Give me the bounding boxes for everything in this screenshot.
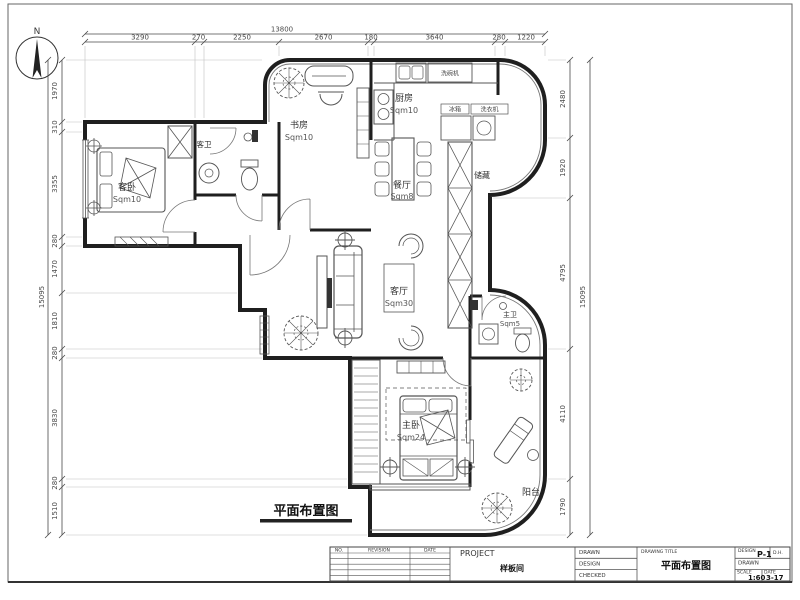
dim-left-seg: 3355 [51,175,59,193]
north-label: N [34,27,41,37]
shower-head-icon [500,303,507,310]
dim-left-seg: 280 [51,476,59,489]
sink [396,63,426,82]
dim-top-seg: 3290 [131,34,149,42]
room-label-dining: 餐厅 [393,179,411,191]
toilet [241,160,258,190]
dim-left-seg: 280 [51,346,59,359]
armchair [399,234,423,258]
room-area-kitchen: Sqm10 [390,106,418,115]
dimension-right: 15095 2480 1920 4795 4110 1790 [488,57,593,538]
fridge-label: 冰箱 [449,106,461,114]
side-table [528,450,539,461]
tv-cabinet [397,361,445,373]
washing-machine [473,116,495,140]
dim-top-seg: 270 [192,34,205,42]
dim-left-seg: 1470 [51,260,59,278]
rev-desc-header: REVISION [368,548,390,554]
north-arrow: N [16,27,58,79]
revision-table: NO. REVISION DATE [335,548,436,554]
closet [168,126,192,158]
drawn2-label: DRAWN [738,561,759,567]
design-label: DESIGN [579,562,600,568]
room-label-master-bath: 主卫 [503,310,517,319]
plan-title-underline [260,519,352,523]
balcony: 阳台 [493,416,540,498]
rev-date-header: DATE [424,548,436,554]
storage-area: 冰箱 洗衣机 储藏 [441,104,508,328]
shower-head-icon [244,130,258,142]
date-value: 3-17 [766,574,784,582]
room-label-master-bedroom: 主卧 [402,419,420,431]
plant-icon [284,316,318,350]
dim-right-seg: 1790 [559,498,567,516]
plant-icon [510,369,532,391]
plant-icon [274,68,304,98]
dim-left-seg: 280 [51,234,59,247]
armchair [399,326,423,350]
dim-top-total: 13800 [271,26,293,34]
dim-top-seg: 180 [364,34,377,42]
room-area-study: Sqm10 [285,133,313,142]
dim-left-seg: 1970 [51,82,59,100]
kitchen: 洗碗机 厨房 Sqm10 [374,63,498,140]
dim-top-seg: 280 [492,34,505,42]
basin [199,163,219,183]
dim-left-seg: 3830 [51,409,59,427]
dim-right-seg: 1920 [559,159,567,177]
room-label-balcony: 阳台 [522,486,540,498]
column-symbol [335,230,355,250]
basin [479,324,498,344]
plant-icon [482,493,512,523]
master-bedroom: 主卧 Sqm24 [352,360,475,484]
wardrobe [352,360,380,484]
room-area-master-bedroom: Sqm24 [397,433,425,442]
room-area-master-bath: Sqm5 [500,320,520,328]
drawing-sheet: N 13800 3290 270 2250 2670 180 3640 280 … [0,0,800,600]
room-area-living: Sqm30 [385,299,413,308]
lamp-symbol [455,457,475,477]
drawing-number: P-1 [757,550,772,559]
project-label: PROJECT [460,549,495,558]
dim-top-seg: 1220 [517,34,535,42]
dim-right-seg: 4795 [559,264,567,282]
sofa [334,246,362,338]
dim-top-seg: 2250 [233,34,251,42]
room-label-kitchen: 厨房 [395,92,413,104]
floorplan-canvas: N 13800 3290 270 2250 2670 180 3640 280 … [0,0,800,600]
drawing-title-label: DRAWING TITLE [641,549,677,555]
room-label-guest-bedroom: 客卧 [118,181,136,193]
room-area-guest-bedroom: Sqm10 [113,195,141,204]
dishwasher-label: 洗碗机 [441,70,459,78]
title-block: NO. REVISION DATE PROJECT 样板间 DRAWN DESI… [8,547,792,582]
interior-walls [82,60,544,490]
designer-initials: D.H. [773,550,783,556]
guest-bathroom: 客卫 [197,128,259,190]
rev-no-header: NO. [335,548,343,554]
drain [470,300,478,310]
scale-value: 1:60 [748,574,766,582]
dim-top-seg: 2670 [315,34,333,42]
fridge [441,116,471,140]
room-area-dining: Sqm8 [390,192,413,201]
compass-needle-icon [33,39,42,78]
plan-title-text: 平面布置图 [273,503,338,519]
dining: 餐厅 Sqm8 [375,138,431,201]
dim-right-total: 15095 [579,286,587,308]
dimension-left: 15095 1970 310 3355 280 1470 1810 280 38… [38,57,367,538]
dim-right-seg: 2480 [559,90,567,108]
dim-right-seg: 4110 [559,405,567,423]
dim-left-total: 15095 [38,286,46,308]
room-label-guest-bath: 客卫 [197,139,212,149]
tv-cabinet [317,256,332,328]
drawing-title: 平面布置图 [661,559,711,572]
dim-left-seg: 1810 [51,312,59,330]
room-label-storage: 储藏 [474,170,490,180]
bookshelf [357,88,369,158]
drawn-label: DRAWN [579,550,600,556]
design2-label: DESIGN [738,548,756,554]
dim-left-seg: 310 [51,120,59,133]
lamp-symbol [380,457,400,477]
storage-closet [448,142,472,328]
room-label-study: 书房 [290,119,308,131]
washer-label: 洗衣机 [480,106,498,114]
column-symbol [335,328,355,348]
room-label-living: 客厅 [390,285,408,297]
checked-label: CHECKED [579,573,606,579]
dim-top-seg: 3640 [426,34,444,42]
toilet [514,328,531,352]
dim-left-seg: 1510 [51,502,59,520]
project-name: 样板间 [500,563,524,573]
master-bathroom: 主卫 Sqm5 [470,300,531,352]
plan-title: 平面布置图 [260,503,352,523]
guest-bedroom: 客卧 Sqm10 [86,126,192,246]
study: 书房 Sqm10 [285,66,369,158]
dishwasher: 洗碗机 [428,63,472,82]
